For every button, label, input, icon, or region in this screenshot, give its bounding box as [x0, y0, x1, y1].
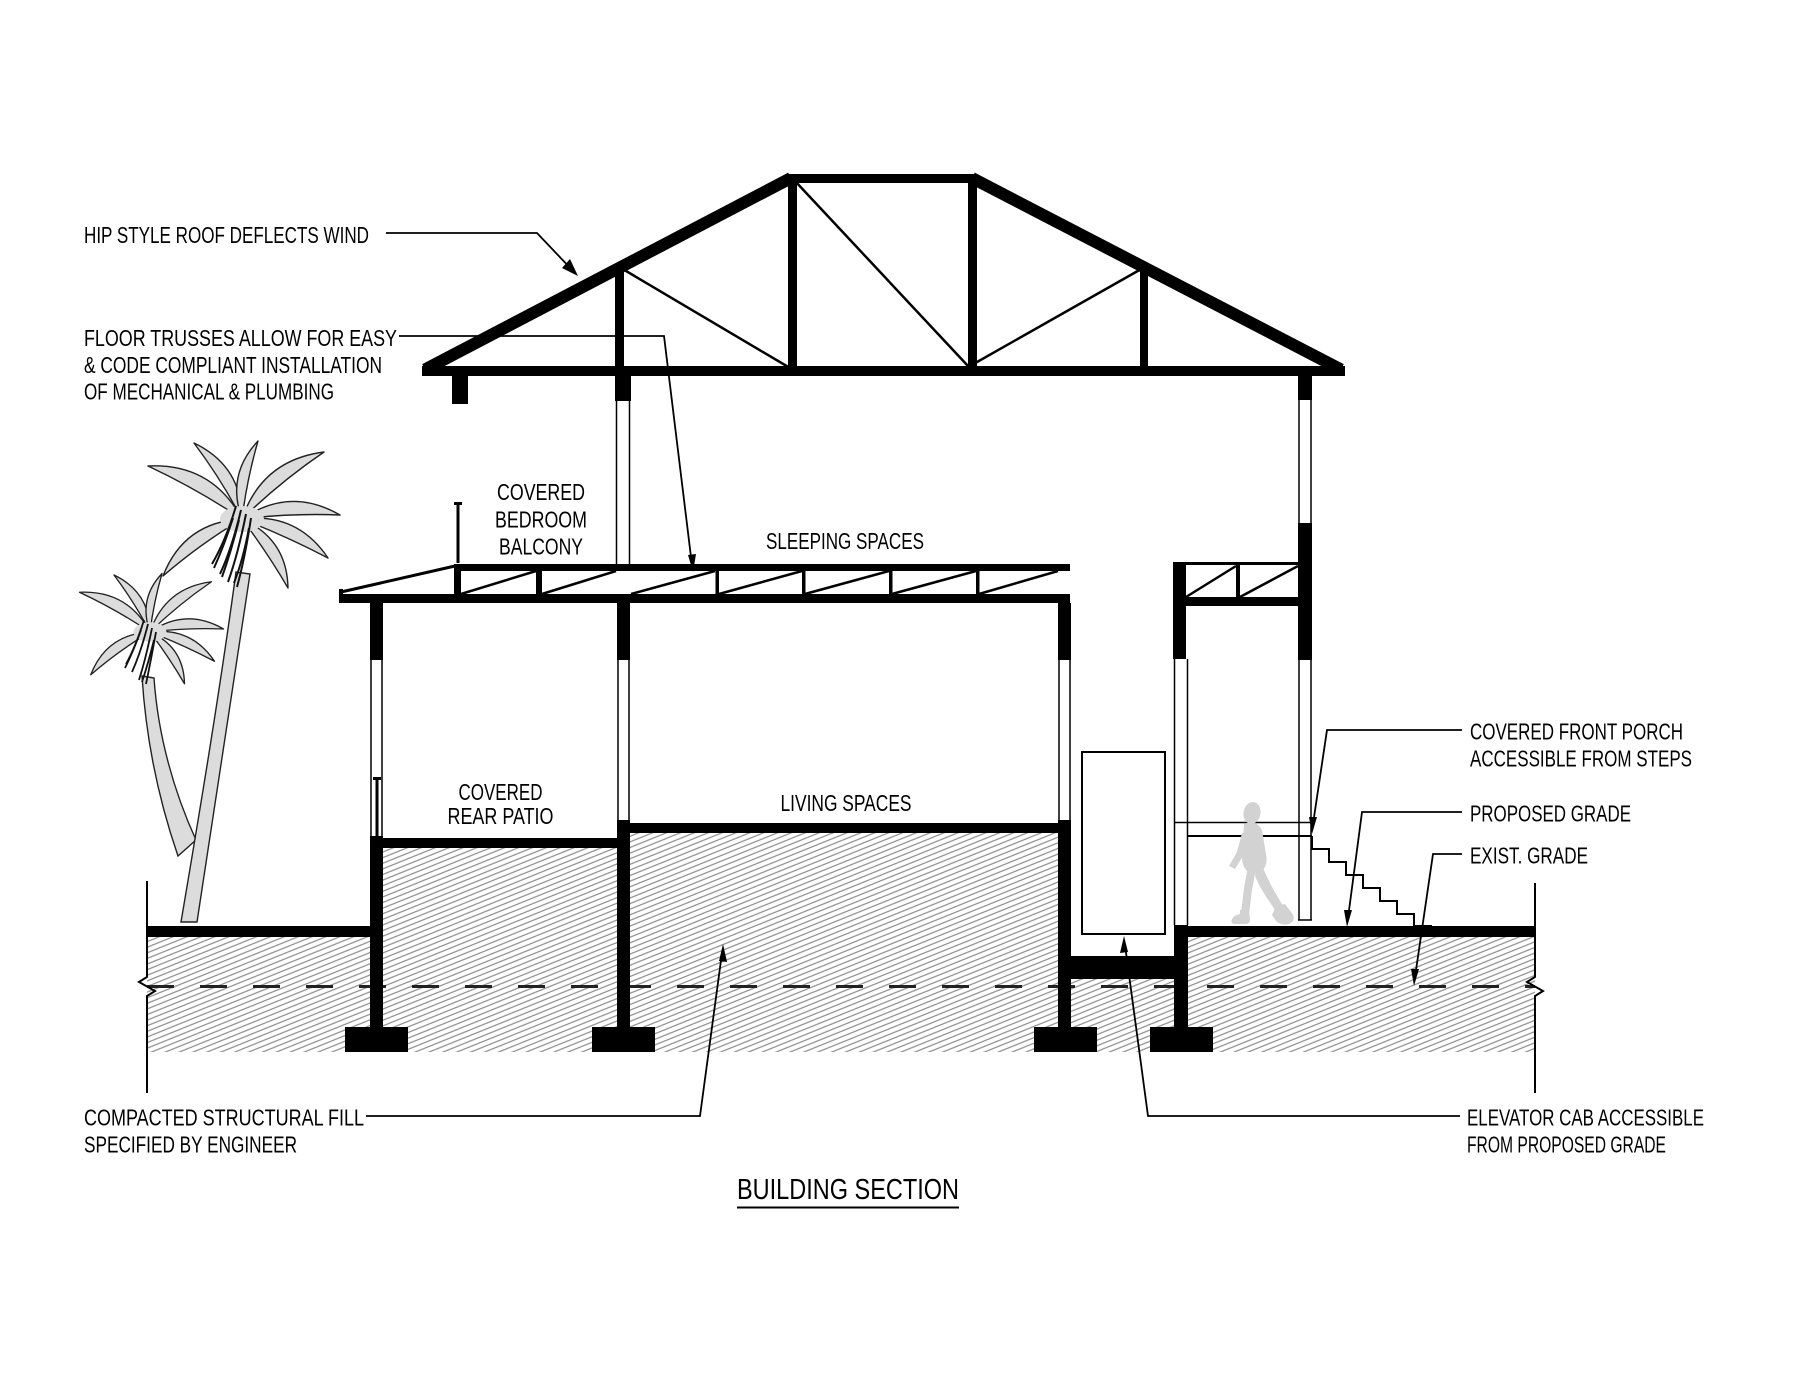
- svg-text:FLOOR TRUSSES ALLOW FOR EASY: FLOOR TRUSSES ALLOW FOR EASY: [84, 325, 397, 351]
- svg-text:OF MECHANICAL & PLUMBING: OF MECHANICAL & PLUMBING: [84, 379, 334, 405]
- svg-text:PROPOSED GRADE: PROPOSED GRADE: [1470, 801, 1631, 827]
- svg-text:HIP STYLE ROOF DEFLECTS WIND: HIP STYLE ROOF DEFLECTS WIND: [84, 222, 369, 248]
- svg-text:ELEVATOR CAB ACCESSIBLE: ELEVATOR CAB ACCESSIBLE: [1467, 1105, 1704, 1131]
- svg-text:BUILDING SECTION: BUILDING SECTION: [737, 1174, 959, 1206]
- svg-text:COVERED FRONT PORCH: COVERED FRONT PORCH: [1470, 719, 1683, 745]
- svg-text:FROM PROPOSED GRADE: FROM PROPOSED GRADE: [1467, 1132, 1666, 1158]
- svg-text:COVERED: COVERED: [459, 779, 543, 805]
- svg-text:LIVING SPACES: LIVING SPACES: [781, 790, 912, 816]
- svg-text:SLEEPING SPACES: SLEEPING SPACES: [766, 528, 924, 554]
- svg-text:EXIST. GRADE: EXIST. GRADE: [1470, 843, 1588, 869]
- svg-text:COMPACTED STRUCTURAL FILL: COMPACTED STRUCTURAL FILL: [84, 1105, 364, 1131]
- svg-text:BALCONY: BALCONY: [499, 534, 583, 560]
- svg-text:& CODE COMPLIANT INSTALLATION: & CODE COMPLIANT INSTALLATION: [84, 352, 382, 378]
- svg-text:REAR PATIO: REAR PATIO: [448, 803, 554, 829]
- svg-text:ACCESSIBLE FROM STEPS: ACCESSIBLE FROM STEPS: [1470, 746, 1692, 772]
- svg-text:COVERED: COVERED: [497, 479, 585, 505]
- svg-text:SPECIFIED BY ENGINEER: SPECIFIED BY ENGINEER: [84, 1132, 297, 1158]
- svg-text:BEDROOM: BEDROOM: [495, 506, 587, 532]
